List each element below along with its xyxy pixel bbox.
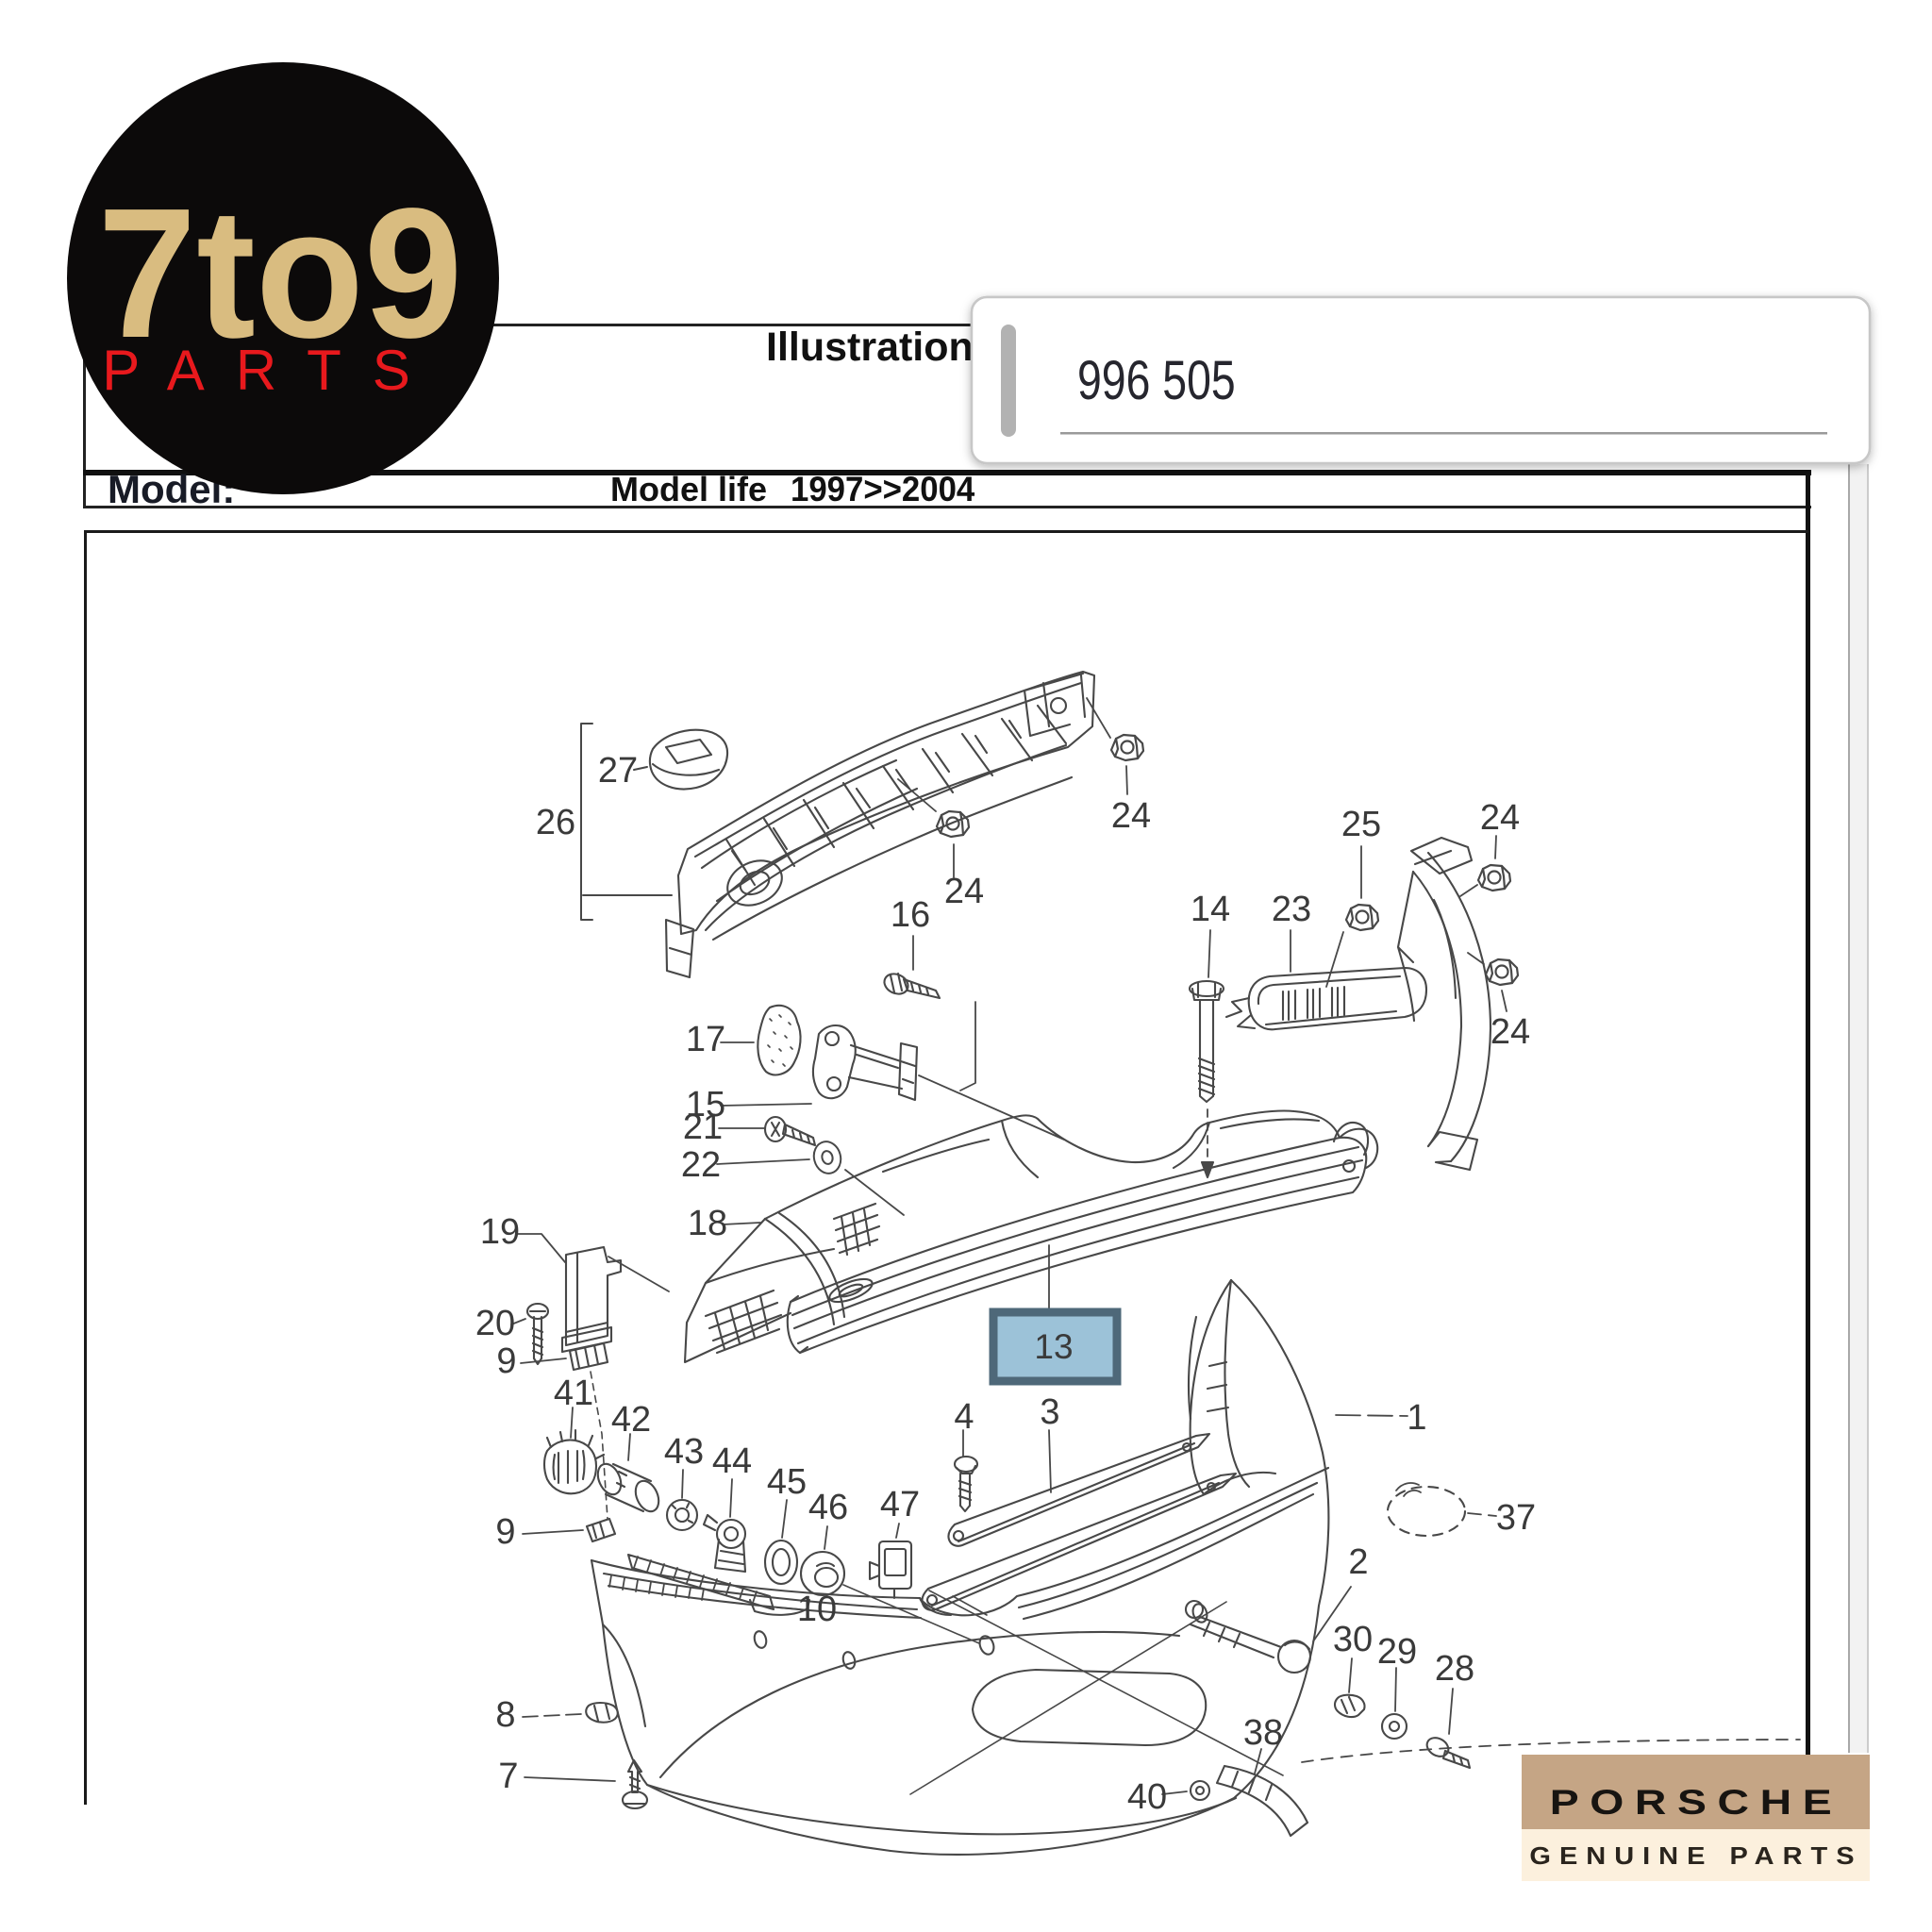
svg-text:30: 30 bbox=[1333, 1620, 1373, 1659]
svg-text:10: 10 bbox=[797, 1590, 837, 1629]
svg-text:18: 18 bbox=[688, 1204, 727, 1243]
svg-text:42: 42 bbox=[611, 1400, 651, 1440]
svg-text:21: 21 bbox=[683, 1108, 723, 1147]
svg-text:44: 44 bbox=[712, 1441, 752, 1481]
svg-text:3: 3 bbox=[1040, 1392, 1059, 1432]
svg-text:4: 4 bbox=[954, 1397, 974, 1437]
svg-text:38: 38 bbox=[1243, 1713, 1283, 1753]
svg-text:14: 14 bbox=[1191, 890, 1230, 929]
svg-text:16: 16 bbox=[891, 895, 930, 935]
svg-text:37: 37 bbox=[1496, 1498, 1536, 1538]
svg-text:GENUINE PARTS: GENUINE PARTS bbox=[1529, 1842, 1862, 1870]
svg-text:Illustration: Illustration bbox=[766, 325, 974, 370]
svg-text:9: 9 bbox=[495, 1512, 515, 1552]
svg-text:9: 9 bbox=[496, 1341, 516, 1381]
svg-text:PARTS: PARTS bbox=[102, 339, 441, 402]
svg-text:43: 43 bbox=[664, 1432, 704, 1472]
svg-text:24: 24 bbox=[944, 872, 984, 911]
svg-text:45: 45 bbox=[767, 1462, 807, 1502]
svg-text:41: 41 bbox=[554, 1374, 593, 1413]
svg-text:22: 22 bbox=[681, 1145, 721, 1185]
svg-text:17: 17 bbox=[686, 1020, 725, 1059]
svg-text:46: 46 bbox=[808, 1488, 848, 1527]
svg-text:7: 7 bbox=[498, 1757, 518, 1796]
svg-text:26: 26 bbox=[536, 803, 575, 842]
svg-text:1: 1 bbox=[1407, 1398, 1426, 1438]
svg-text:20: 20 bbox=[475, 1304, 515, 1343]
svg-text:25: 25 bbox=[1341, 805, 1381, 844]
svg-text:40: 40 bbox=[1127, 1777, 1167, 1817]
svg-text:29: 29 bbox=[1377, 1632, 1417, 1672]
svg-text:24: 24 bbox=[1111, 796, 1151, 836]
svg-text:Model life: Model life bbox=[610, 470, 767, 508]
svg-text:28: 28 bbox=[1435, 1649, 1474, 1689]
svg-text:2: 2 bbox=[1348, 1542, 1368, 1582]
svg-text:13: 13 bbox=[1034, 1327, 1073, 1366]
svg-text:996 505: 996 505 bbox=[1077, 350, 1236, 411]
svg-text:23: 23 bbox=[1272, 890, 1311, 929]
svg-text:8: 8 bbox=[495, 1695, 515, 1735]
svg-text:1997>>2004: 1997>>2004 bbox=[791, 470, 974, 508]
svg-text:19: 19 bbox=[480, 1212, 520, 1252]
svg-text:PORSCHE: PORSCHE bbox=[1550, 1783, 1843, 1822]
svg-text:24: 24 bbox=[1491, 1012, 1530, 1052]
svg-text:24: 24 bbox=[1480, 798, 1520, 838]
svg-text:47: 47 bbox=[880, 1485, 920, 1524]
svg-text:27: 27 bbox=[598, 751, 638, 791]
